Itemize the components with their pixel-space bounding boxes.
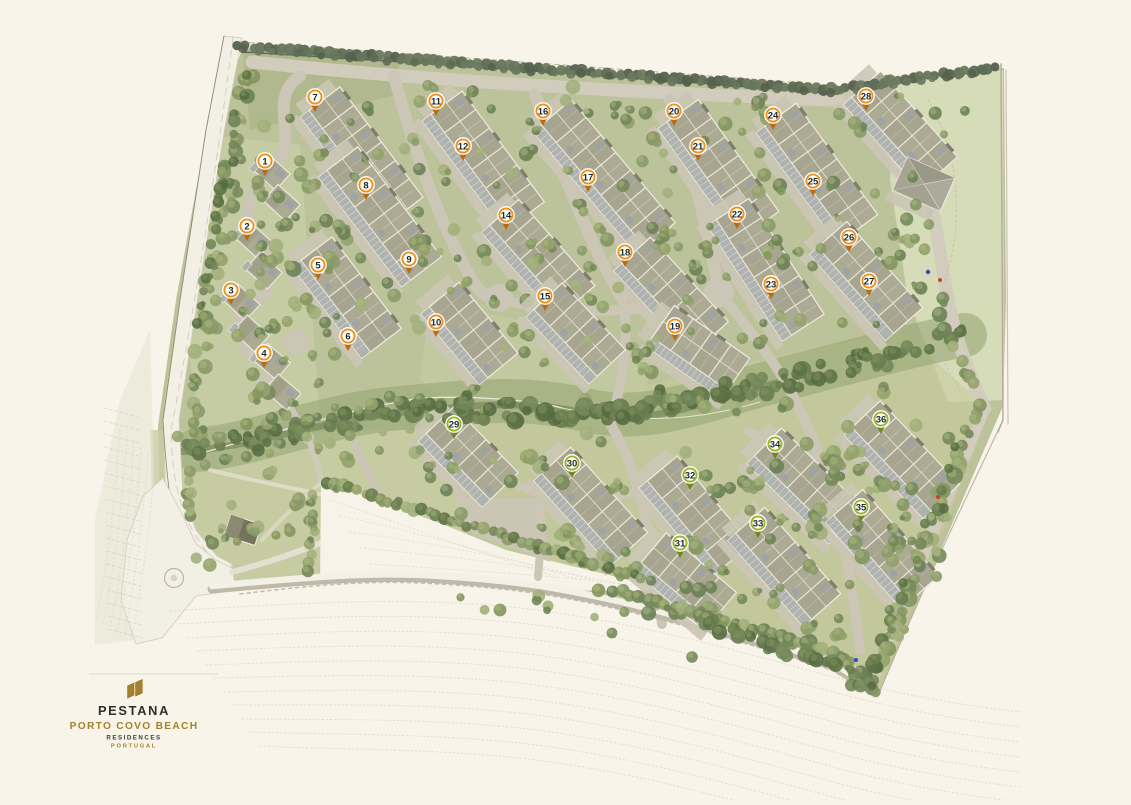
svg-text:32: 32 [685, 470, 696, 481]
svg-text:33: 33 [753, 518, 764, 529]
svg-text:18: 18 [620, 247, 631, 258]
svg-text:PESTANA: PESTANA [98, 703, 170, 718]
svg-text:4: 4 [261, 348, 267, 359]
svg-text:31: 31 [675, 538, 686, 549]
svg-text:29: 29 [449, 419, 460, 430]
svg-text:25: 25 [808, 176, 819, 187]
svg-text:5: 5 [315, 260, 321, 271]
svg-text:PORTO COVO BEACH: PORTO COVO BEACH [70, 721, 199, 732]
svg-text:2: 2 [244, 221, 249, 232]
svg-text:19: 19 [670, 321, 681, 332]
svg-text:RESIDENCES: RESIDENCES [106, 735, 161, 742]
svg-text:16: 16 [538, 106, 549, 117]
svg-text:7: 7 [312, 92, 317, 103]
svg-text:36: 36 [876, 414, 887, 425]
svg-text:3: 3 [228, 285, 233, 296]
svg-text:35: 35 [856, 502, 867, 513]
svg-text:9: 9 [406, 254, 411, 265]
svg-text:24: 24 [768, 110, 779, 121]
svg-text:20: 20 [669, 106, 680, 117]
svg-text:11: 11 [431, 96, 442, 107]
svg-text:22: 22 [732, 209, 743, 220]
svg-text:30: 30 [567, 458, 578, 469]
svg-text:8: 8 [363, 180, 368, 191]
svg-text:PORTUGAL: PORTUGAL [111, 744, 157, 750]
svg-text:21: 21 [693, 141, 704, 152]
svg-text:10: 10 [431, 317, 442, 328]
svg-text:1: 1 [262, 156, 268, 167]
svg-text:26: 26 [844, 232, 855, 243]
svg-text:23: 23 [766, 279, 777, 290]
svg-text:14: 14 [501, 210, 512, 221]
svg-text:15: 15 [540, 291, 551, 302]
svg-text:12: 12 [458, 141, 469, 152]
svg-text:17: 17 [583, 172, 594, 183]
svg-text:28: 28 [861, 91, 872, 102]
svg-text:6: 6 [345, 331, 350, 342]
svg-text:27: 27 [864, 276, 875, 287]
svg-text:34: 34 [770, 439, 781, 450]
